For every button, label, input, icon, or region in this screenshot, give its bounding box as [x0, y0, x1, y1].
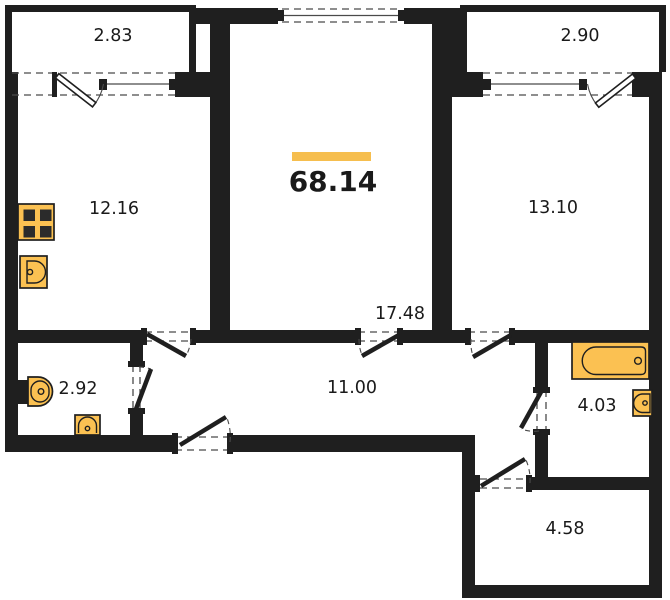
wall-segment [535, 433, 548, 477]
wall-segment [512, 330, 662, 343]
wall-segment [535, 343, 548, 390]
bathroom-sink-icon [633, 390, 652, 416]
windows [12, 9, 633, 95]
door-leaf [180, 417, 226, 445]
window-jamb [579, 79, 587, 90]
wall-segment [432, 8, 452, 343]
door-leaf [362, 335, 399, 356]
wall-segment [400, 330, 468, 343]
room-area-label-bathroom: 4.03 [578, 396, 617, 416]
stove-burner [24, 210, 36, 222]
door-leaf [147, 334, 186, 356]
stove-burner [40, 210, 52, 222]
wall-segment [530, 477, 662, 490]
window-jamb [169, 79, 177, 90]
wall-segment [18, 330, 145, 343]
door-jamb [227, 433, 233, 454]
door-leaf [136, 369, 151, 409]
stove-burner [24, 226, 36, 238]
door-jamb [474, 475, 480, 492]
room-area-label-living-room: 17.48 [375, 304, 425, 324]
wall-segment [196, 8, 278, 24]
toilet-tank [16, 380, 28, 404]
room-area-label-bedroom: 13.10 [528, 198, 578, 218]
kitchen-sink-icon [20, 256, 47, 288]
wall-segment [210, 8, 230, 343]
stove-icon [18, 204, 54, 240]
toilet-icon [16, 377, 53, 406]
door-jamb [128, 361, 145, 367]
window-jamb [276, 10, 284, 21]
window-jamb [483, 79, 491, 90]
wall-segment [5, 435, 175, 452]
balcony-door-leaf [595, 74, 635, 107]
wall-segment [460, 5, 666, 12]
labels: 68.14 2.83 2.90 12.16 17.48 13.10 2.92 1… [59, 26, 617, 539]
wall-segment [189, 5, 196, 72]
door-leaf [473, 335, 511, 357]
fixtures [16, 204, 652, 435]
door-jamb [465, 328, 471, 345]
door-leaf [521, 392, 541, 428]
wc-sink-icon [75, 415, 100, 435]
wall-segment [659, 5, 666, 72]
floor-plan-canvas: 68.14 2.83 2.90 12.16 17.48 13.10 2.92 1… [0, 0, 670, 600]
door-jamb [533, 387, 550, 393]
room-area-label-corridor: 11.00 [327, 378, 377, 398]
wall-segment [5, 5, 12, 72]
bathtub-icon [572, 342, 649, 379]
door-jamb [533, 429, 550, 435]
wall-segment [5, 5, 196, 12]
door-jamb [141, 328, 147, 345]
door-jamb [526, 475, 532, 492]
window-jamb [398, 10, 406, 21]
balcony-door-leaf [55, 74, 95, 107]
wall-segment [192, 330, 358, 343]
stove-burner [40, 226, 52, 238]
door-jamb [172, 433, 178, 454]
wall-segment [462, 435, 475, 598]
wall-segment [452, 72, 483, 97]
room-area-label-balcony-left: 2.83 [94, 26, 133, 46]
floor-plan: 68.14 2.83 2.90 12.16 17.48 13.10 2.92 1… [0, 0, 670, 600]
room-area-label-balcony-right: 2.90 [561, 26, 600, 46]
room-area-label-kitchen: 12.16 [89, 199, 139, 219]
walls [5, 5, 666, 598]
room-area-label-wc: 2.92 [59, 379, 98, 399]
total-area-label: 68.14 [289, 165, 378, 198]
wall-segment [230, 435, 475, 452]
wall-segment [462, 585, 662, 598]
door-jamb [355, 328, 361, 345]
door-leaf [481, 459, 525, 486]
total-area-accent-bar [292, 152, 371, 161]
room-area-label-hall: 4.58 [546, 519, 585, 539]
